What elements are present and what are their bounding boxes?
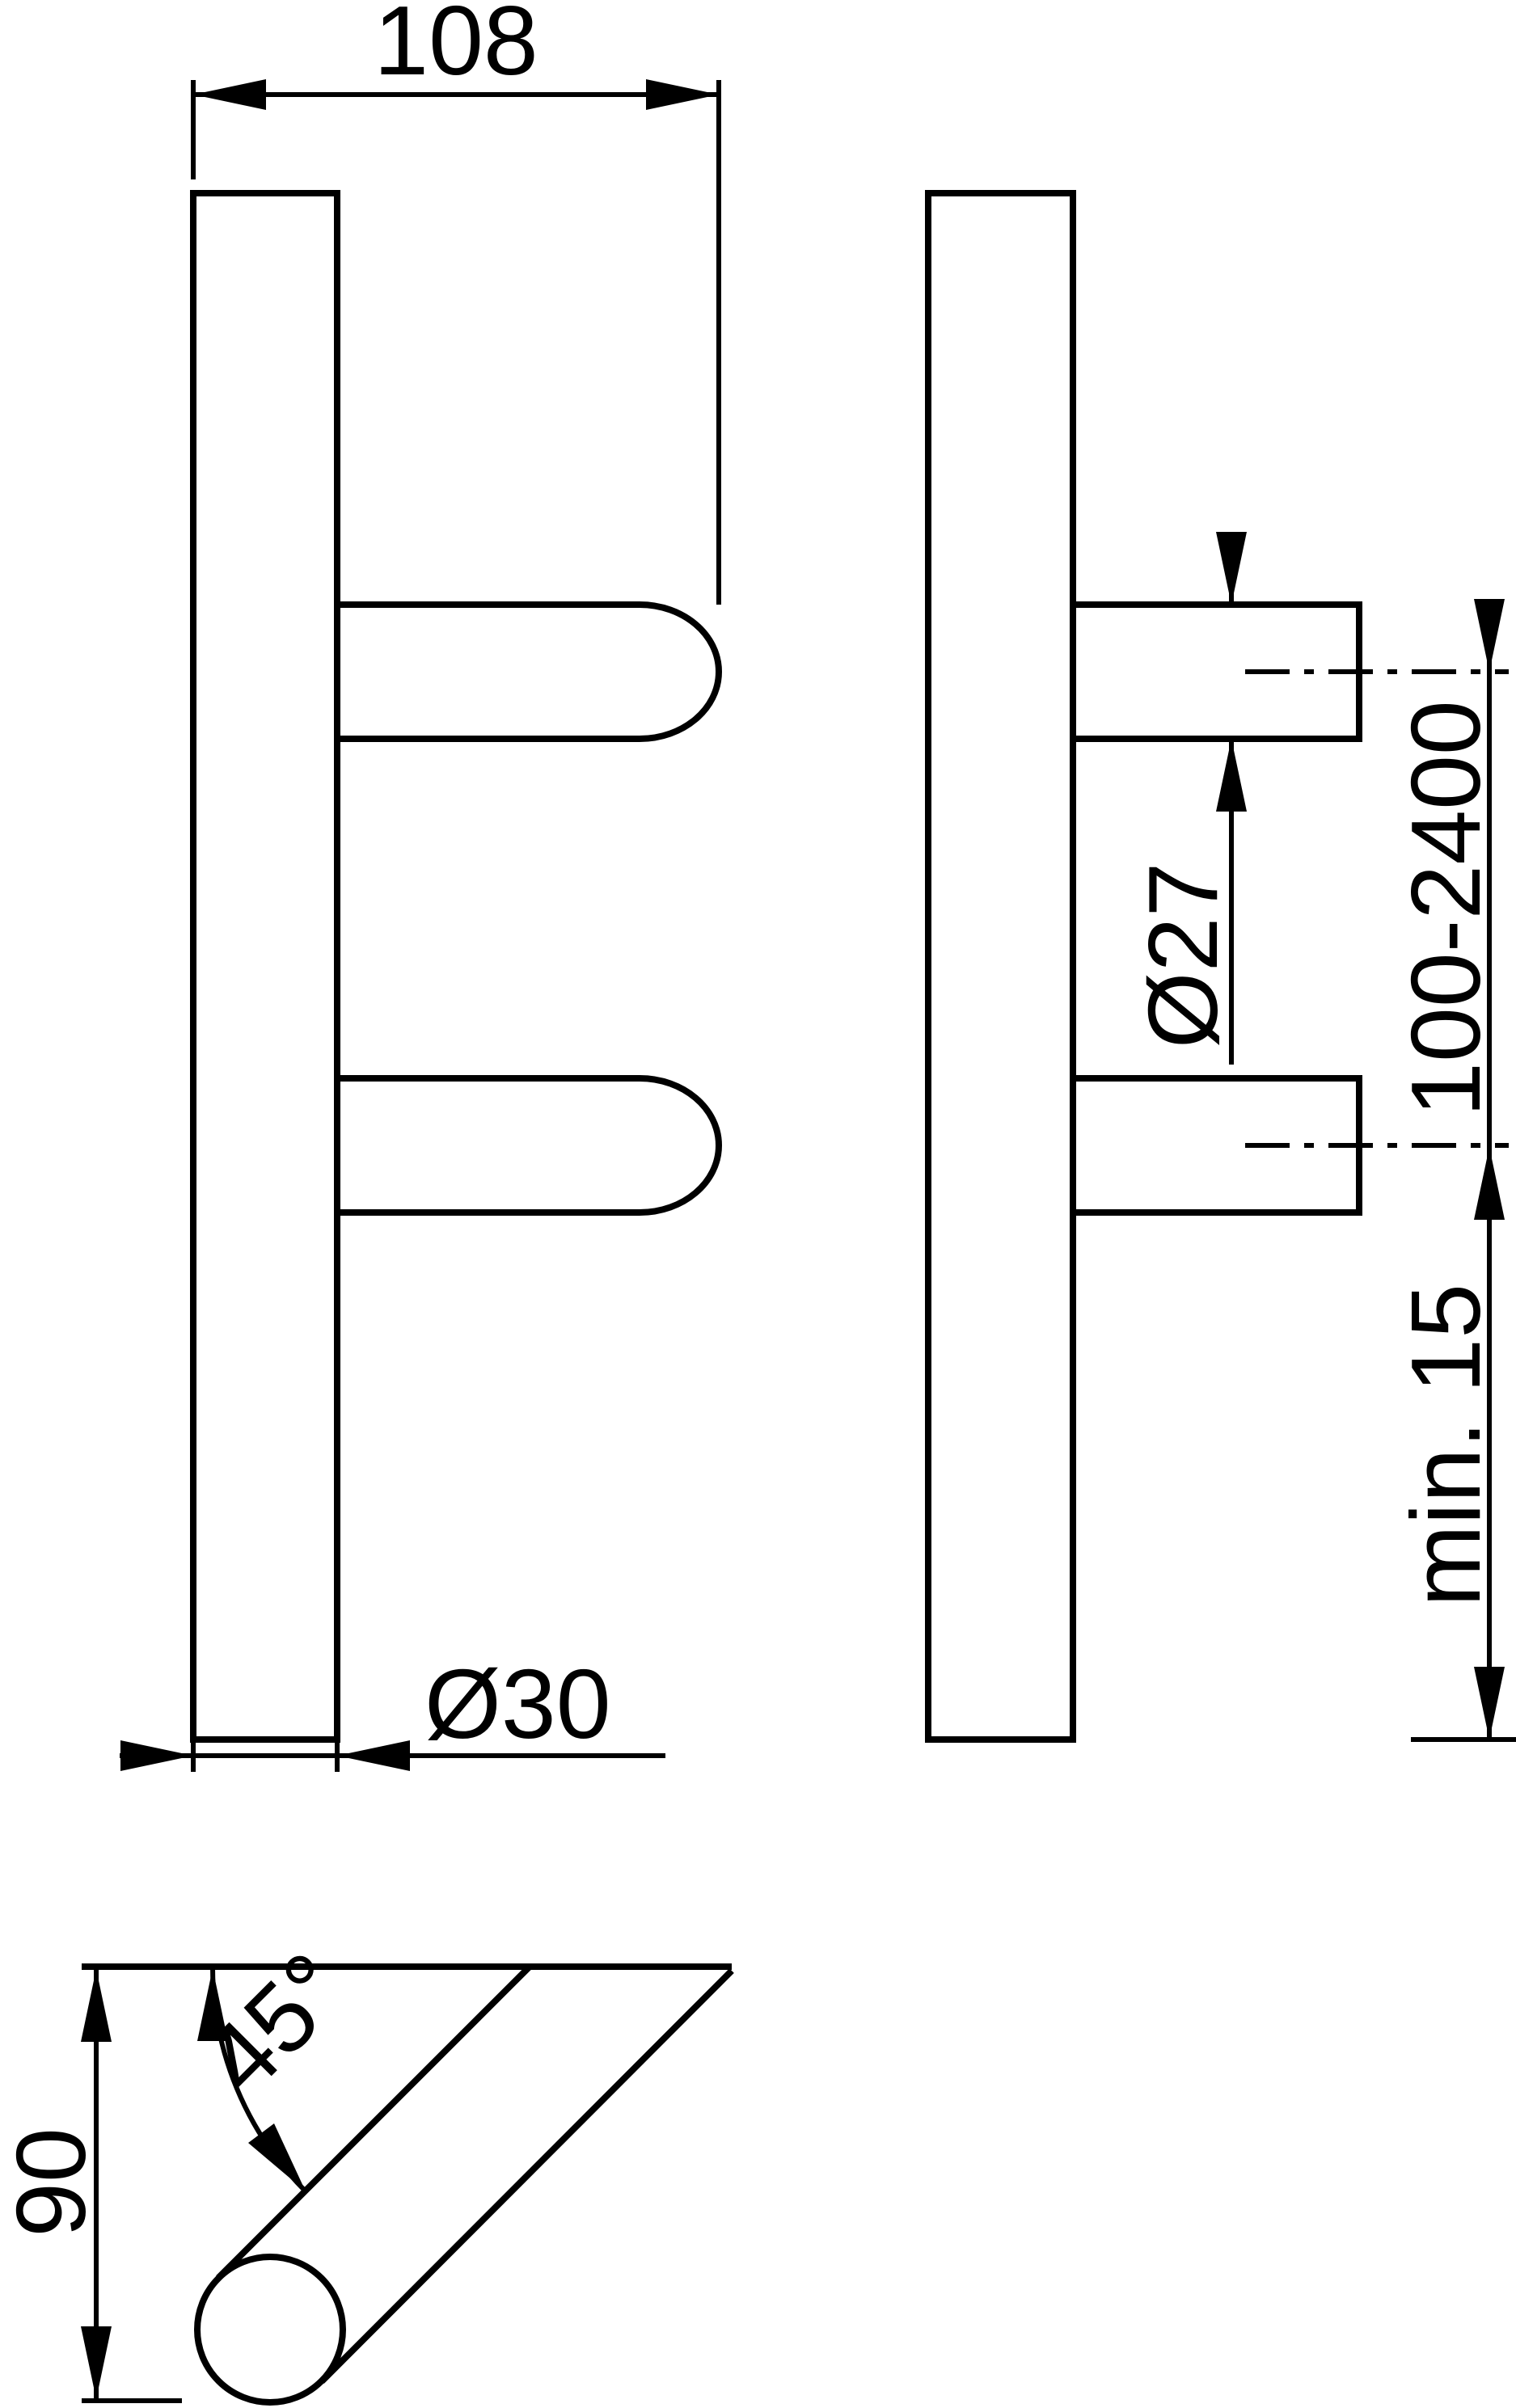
cylinder-lower-edge (322, 1971, 732, 2381)
dim-grip-diameter: Ø30 (120, 1649, 665, 1772)
dim-108-arrowhead-left (193, 79, 266, 110)
front-upper-support (337, 605, 719, 739)
dim-fixing-centers-and-min15: 100-2400 min. 15 (1391, 599, 1516, 1740)
dim-min15-arrowhead-bottom (1474, 1667, 1505, 1740)
front-handle-bar (193, 193, 337, 1740)
front-lower-support (337, 1078, 719, 1212)
technical-drawing-canvas: 108 Ø30 Ø27 100-2400 min. 15 45° (0, 0, 1516, 2408)
dim-support-diameter: Ø27 (1128, 532, 1247, 1065)
angle-arc-arrowhead-bottom (248, 2123, 306, 2191)
dim-108-arrowhead-right (646, 79, 719, 110)
dim-min15-label: min. 15 (1391, 1284, 1501, 1607)
dim-27-arrowhead-bottom (1216, 739, 1247, 812)
front-view (193, 193, 719, 1740)
grip-cross-section-circle (197, 2257, 343, 2402)
dim-30-arrowhead-right (337, 1740, 410, 1771)
side-lower-support (1073, 1078, 1359, 1212)
dim-30-label: Ø30 (424, 1649, 611, 1759)
side-upper-support (1073, 605, 1359, 739)
dim-90-arrowhead-top (81, 1969, 112, 2042)
side-handle-bar (928, 193, 1073, 1740)
mounting-angle-view: 45° 90 (0, 1932, 732, 2402)
dim-27-arrowhead-top (1216, 532, 1247, 605)
dim-27-label: Ø27 (1128, 862, 1238, 1049)
angle-label: 45° (184, 1932, 368, 2115)
dim-108-label: 108 (374, 0, 538, 95)
dim-shared-arrowhead-up (1474, 1147, 1505, 1220)
drawing-sheet: 108 Ø30 Ø27 100-2400 min. 15 45° (0, 0, 1516, 2408)
dim-90-arrowhead-bottom (81, 2326, 112, 2399)
dim-90-label: 90 (0, 2128, 106, 2237)
dim-30-arrowhead-left (120, 1740, 193, 1771)
dim-2400-label: 100-2400 (1391, 700, 1501, 1117)
dim-2400-arrowhead-top (1474, 599, 1505, 672)
dim-projection-width: 108 (193, 0, 719, 605)
